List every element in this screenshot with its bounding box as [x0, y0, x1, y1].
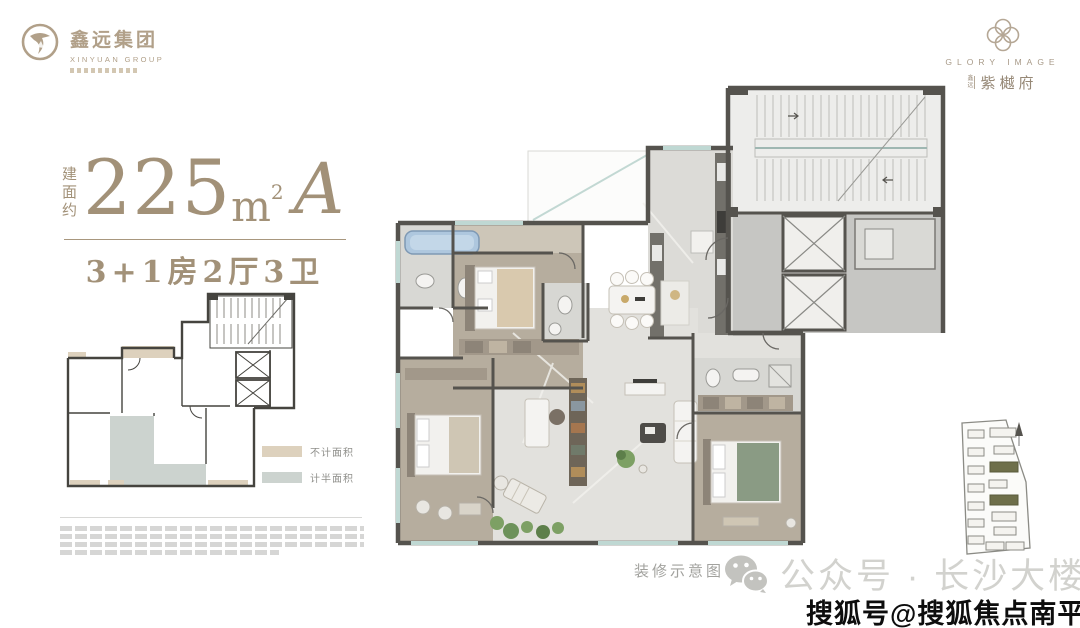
key-plan-elevator-icon: [236, 352, 270, 406]
developer-name-en: XINYUAN GROUP: [70, 55, 164, 64]
title-divider-line: [64, 239, 346, 240]
unit-type-letter: A: [294, 154, 345, 224]
legend-label-half: 计半面积: [310, 470, 354, 485]
project-logo: GLORY IMAGE 鑫远 紫樾府: [940, 16, 1065, 93]
poster-canvas: 鑫远集团 XINYUAN GROUP GLORY IMAGE 鑫远 紫樾府 建面…: [0, 0, 1080, 628]
plan-canopy: [528, 151, 651, 223]
plan-caption: 装修示意图: [634, 560, 724, 581]
area-prefix-label: 建面约: [58, 166, 79, 220]
legend-item-half: 计半面积: [262, 470, 354, 485]
sohu-watermark: 搜狐号@搜狐焦点南平站: [806, 592, 1080, 628]
legend-item-notcounted: 不计面积: [262, 444, 354, 459]
legend-label-notcounted: 不计面积: [310, 444, 354, 459]
developer-logo: 鑫远集团 XINYUAN GROUP: [20, 22, 164, 73]
legend-swatch-gray: [262, 472, 302, 483]
key-plan-stairs-icon: [208, 294, 294, 348]
stairs-icon: [755, 95, 927, 201]
project-prefix: 鑫远: [967, 76, 975, 89]
wechat-icon: [722, 550, 770, 598]
area-unit-superscript: 2: [271, 180, 284, 204]
xinyuan-emblem-icon: [20, 22, 60, 62]
project-name-en: GLORY IMAGE: [940, 57, 1065, 67]
glory-knot-icon: [984, 16, 1022, 54]
plan-legend: 不计面积 计半面积: [262, 444, 354, 496]
main-floor-plan: [393, 83, 963, 551]
site-plan: [956, 390, 1068, 565]
north-arrow-icon: [1015, 422, 1023, 446]
unit-area-title: 建面约 225 m 2 A: [58, 152, 344, 228]
key-plan-half-area: [110, 416, 206, 486]
legend-swatch-tan: [262, 446, 302, 457]
developer-tagline: [70, 68, 140, 73]
disclaimer-text: [60, 526, 364, 558]
project-name-cn: 紫樾府: [980, 72, 1037, 93]
layout-spec: 3+1房2厅3卫: [64, 247, 346, 291]
area-unit: m: [231, 186, 271, 228]
area-value: 225: [83, 152, 231, 224]
disclaimer-divider: [60, 517, 362, 518]
developer-name-cn: 鑫远集团: [70, 25, 164, 52]
